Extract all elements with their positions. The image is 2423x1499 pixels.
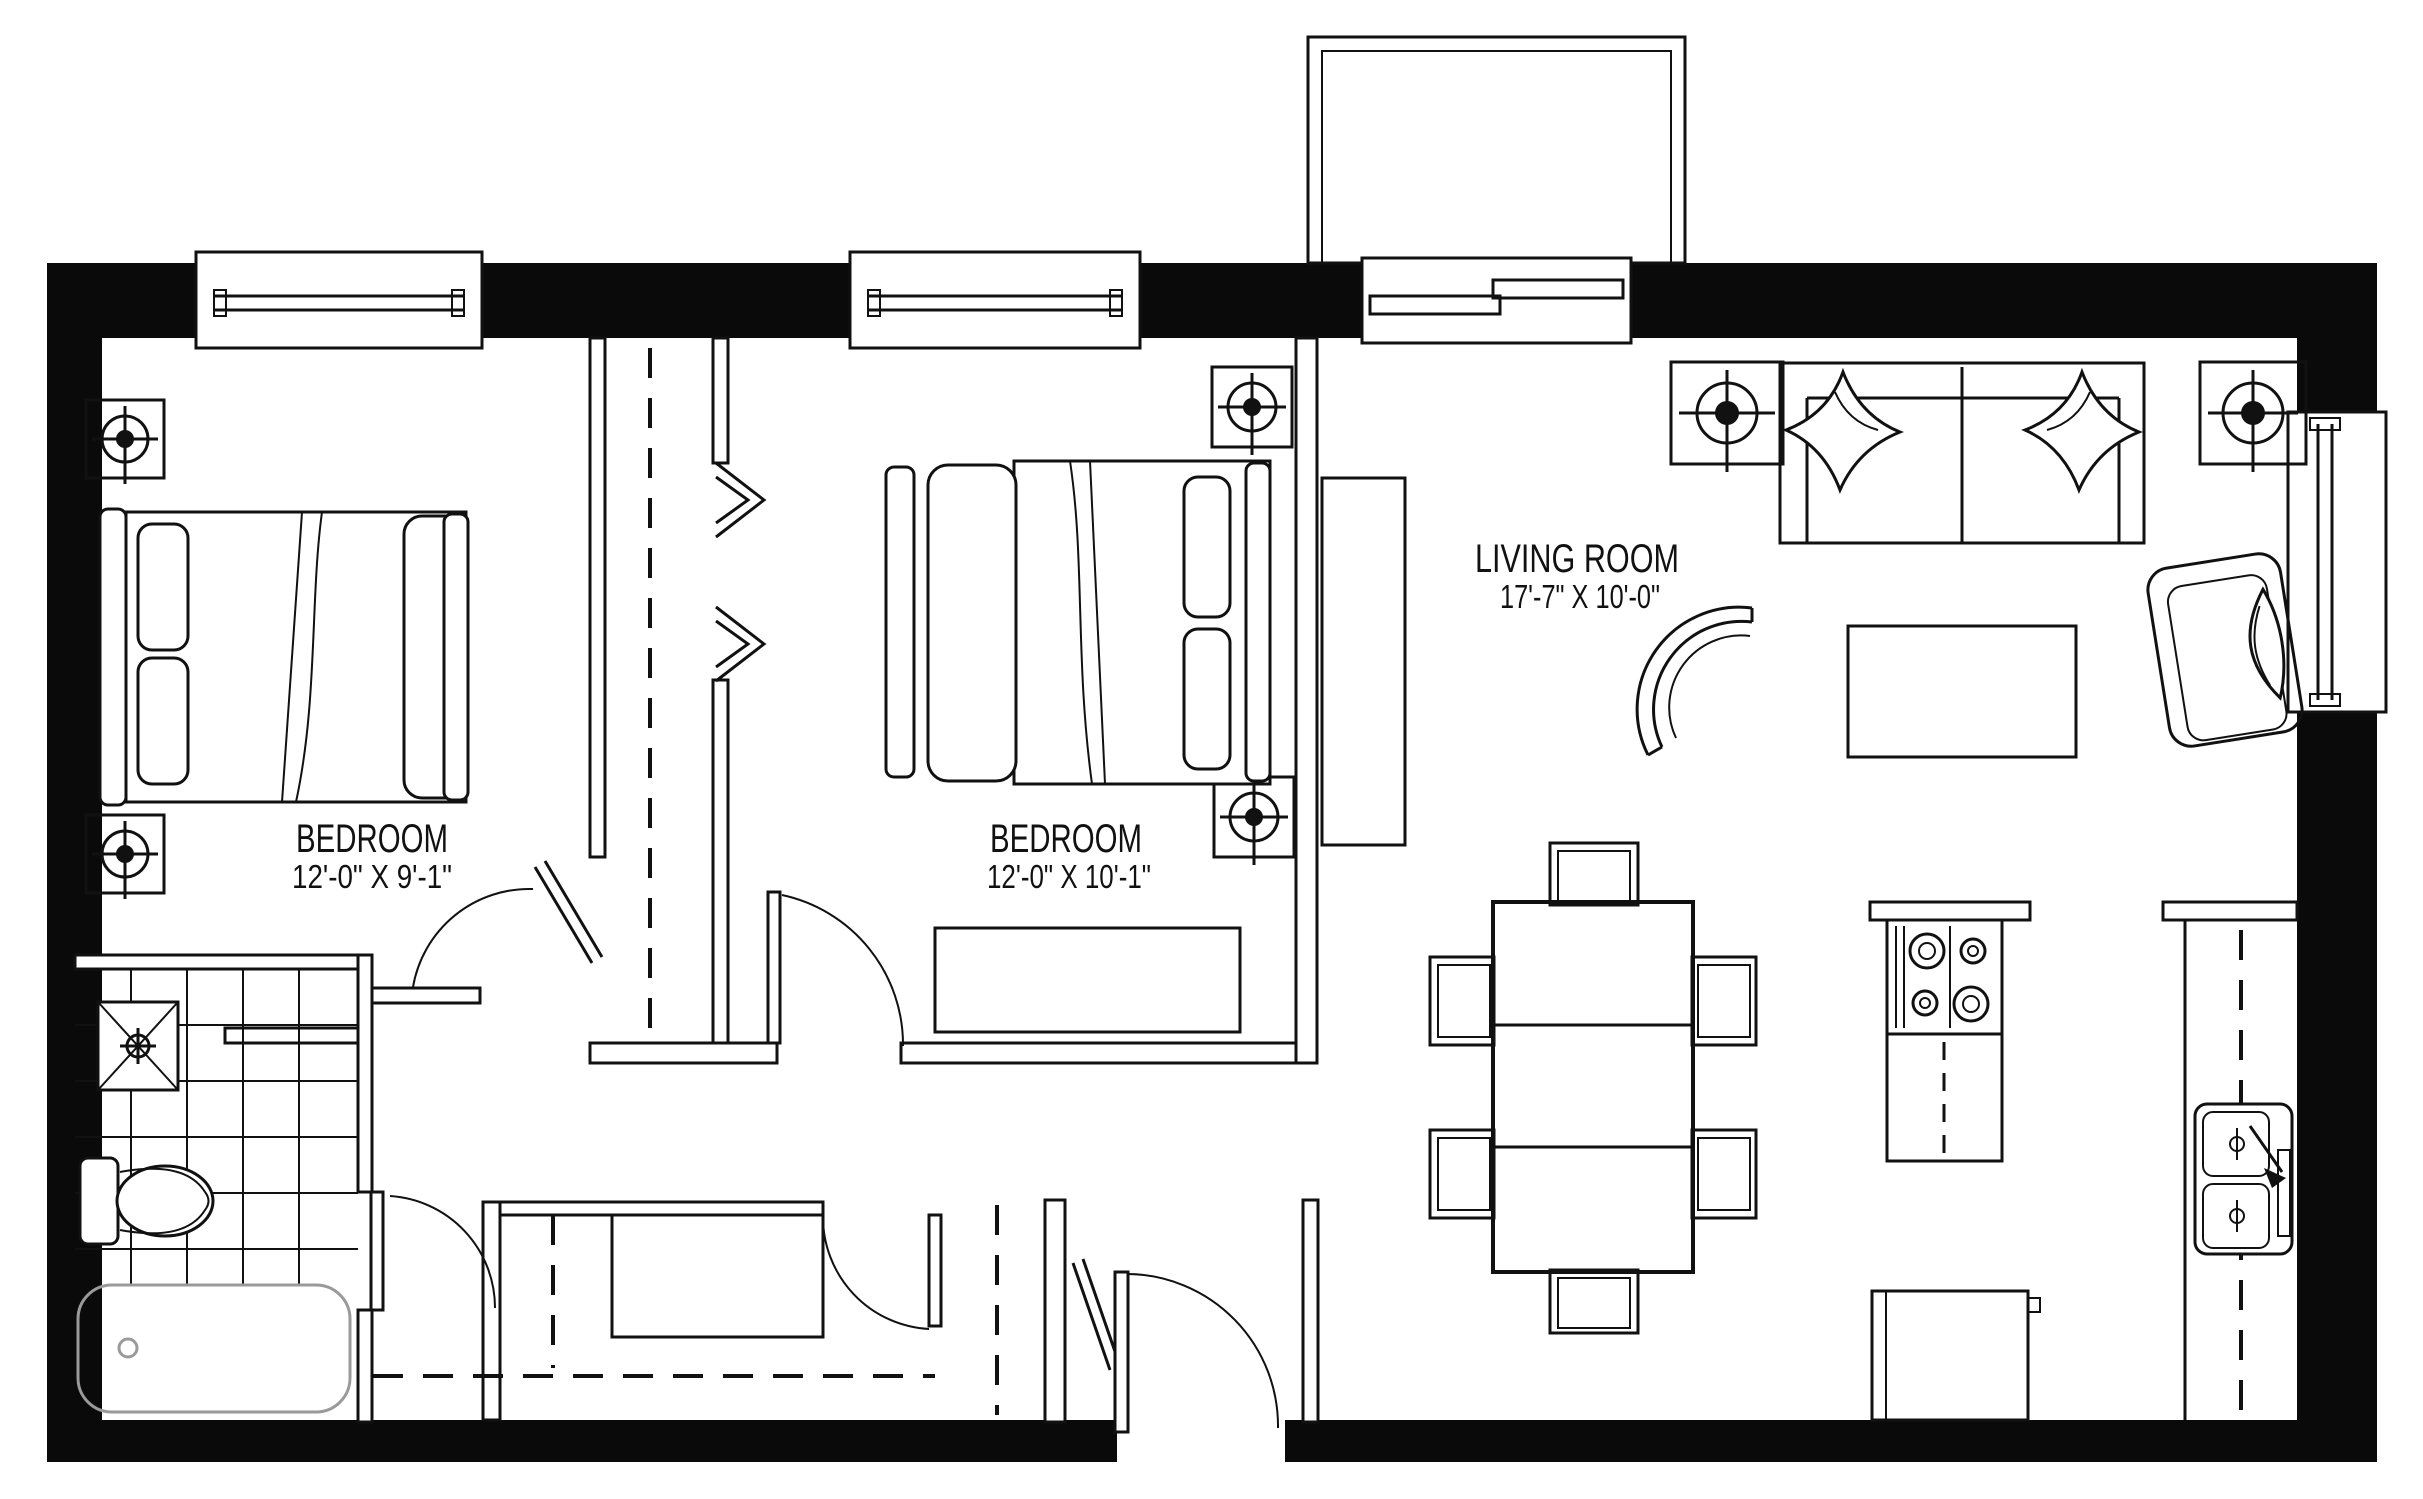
living-room-side-window: [2288, 412, 2386, 712]
living-room-dimensions: 17'-7" X 10'-0": [1500, 578, 1660, 615]
tv-console: [1322, 478, 1405, 845]
round-chair: [1637, 607, 1752, 755]
kitchen-sink: [2195, 1104, 2292, 1254]
dining-chairs: [1430, 843, 1756, 1333]
entry-door: [1115, 1272, 1278, 1432]
storage-closet-door: [823, 1215, 941, 1329]
stove-burner-icon: [1961, 939, 1985, 963]
bedroom2-door: [768, 892, 903, 1046]
balcony: [1308, 37, 1685, 263]
coat-closet-door: [1073, 1259, 1120, 1370]
closet-door-chevrons: [716, 463, 764, 681]
balcony-sliding-door: [1362, 258, 1631, 343]
bathtub: [78, 1285, 350, 1412]
living-room-label: LIVING ROOM: [1475, 537, 1679, 581]
armchair: [2145, 551, 2306, 750]
sofa: [1780, 363, 2144, 543]
throw-pillow-icon: [2025, 372, 2139, 490]
coffee-table: [1848, 626, 2076, 757]
ceiling-speaker-icon: [1214, 777, 1294, 865]
ceiling-speaker-icon: [1671, 362, 1783, 472]
shower-drain-icon: [98, 1002, 178, 1090]
floor-plan-page: BEDROOM 12'-0" X 9'-1" BEDROOM 12'-0" X …: [0, 0, 2423, 1499]
bedroom1-dimensions: 12'-0" X 9'-1": [292, 858, 452, 895]
toilet: [80, 1158, 213, 1244]
kitchen-stove: [1870, 902, 2030, 1161]
ceiling-speaker-icon: [1212, 367, 1292, 455]
bedroom1-bed: [100, 509, 468, 805]
stove-burner-icon: [1910, 934, 1944, 968]
bedroom2-dresser: [935, 928, 1240, 1032]
bedroom2-window: [850, 252, 1140, 348]
bedroom2-dimensions: 12'-0" X 10'-1": [987, 858, 1151, 895]
bedroom2-label: BEDROOM: [990, 817, 1142, 861]
throw-pillow-icon: [2242, 588, 2290, 702]
stove-burner-icon: [1954, 987, 1988, 1021]
stove-burner-icon: [1913, 991, 1937, 1015]
bedroom1-label: BEDROOM: [296, 817, 448, 861]
bedroom1-window: [196, 252, 482, 348]
bathroom-door: [371, 1192, 495, 1310]
throw-pillow-icon: [1786, 372, 1900, 490]
bedroom2-bed: [886, 461, 1270, 784]
dining-table: [1493, 902, 1693, 1272]
refrigerator: [1872, 1291, 2040, 1420]
floor-plan-drawing: BEDROOM 12'-0" X 9'-1" BEDROOM 12'-0" X …: [0, 0, 2423, 1499]
